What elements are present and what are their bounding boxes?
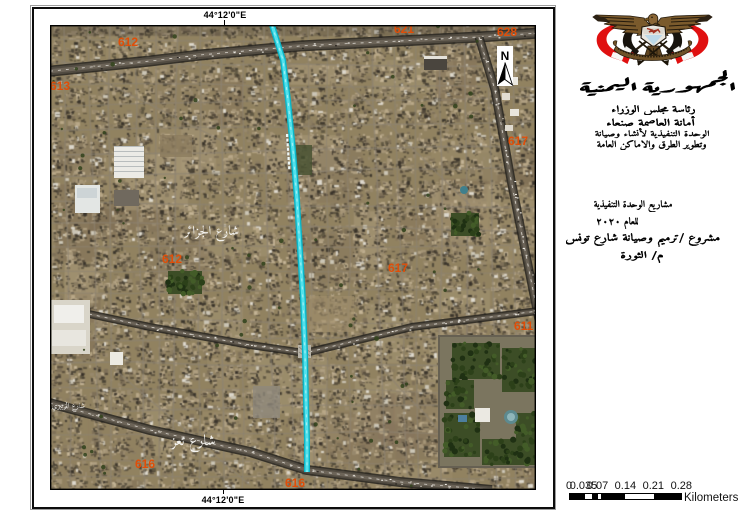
svg-text:611: 611	[514, 319, 534, 333]
svg-text:616: 616	[135, 457, 155, 471]
svg-text:617: 617	[508, 134, 528, 148]
svg-text:617: 617	[388, 261, 408, 275]
svg-text:628: 628	[497, 25, 517, 39]
svg-text:N: N	[501, 49, 510, 63]
svg-text:621: 621	[394, 25, 414, 36]
svg-text:612: 612	[162, 252, 182, 266]
svg-text:612: 612	[118, 35, 138, 49]
svg-text:613: 613	[50, 79, 70, 93]
svg-text:616: 616	[285, 476, 305, 490]
